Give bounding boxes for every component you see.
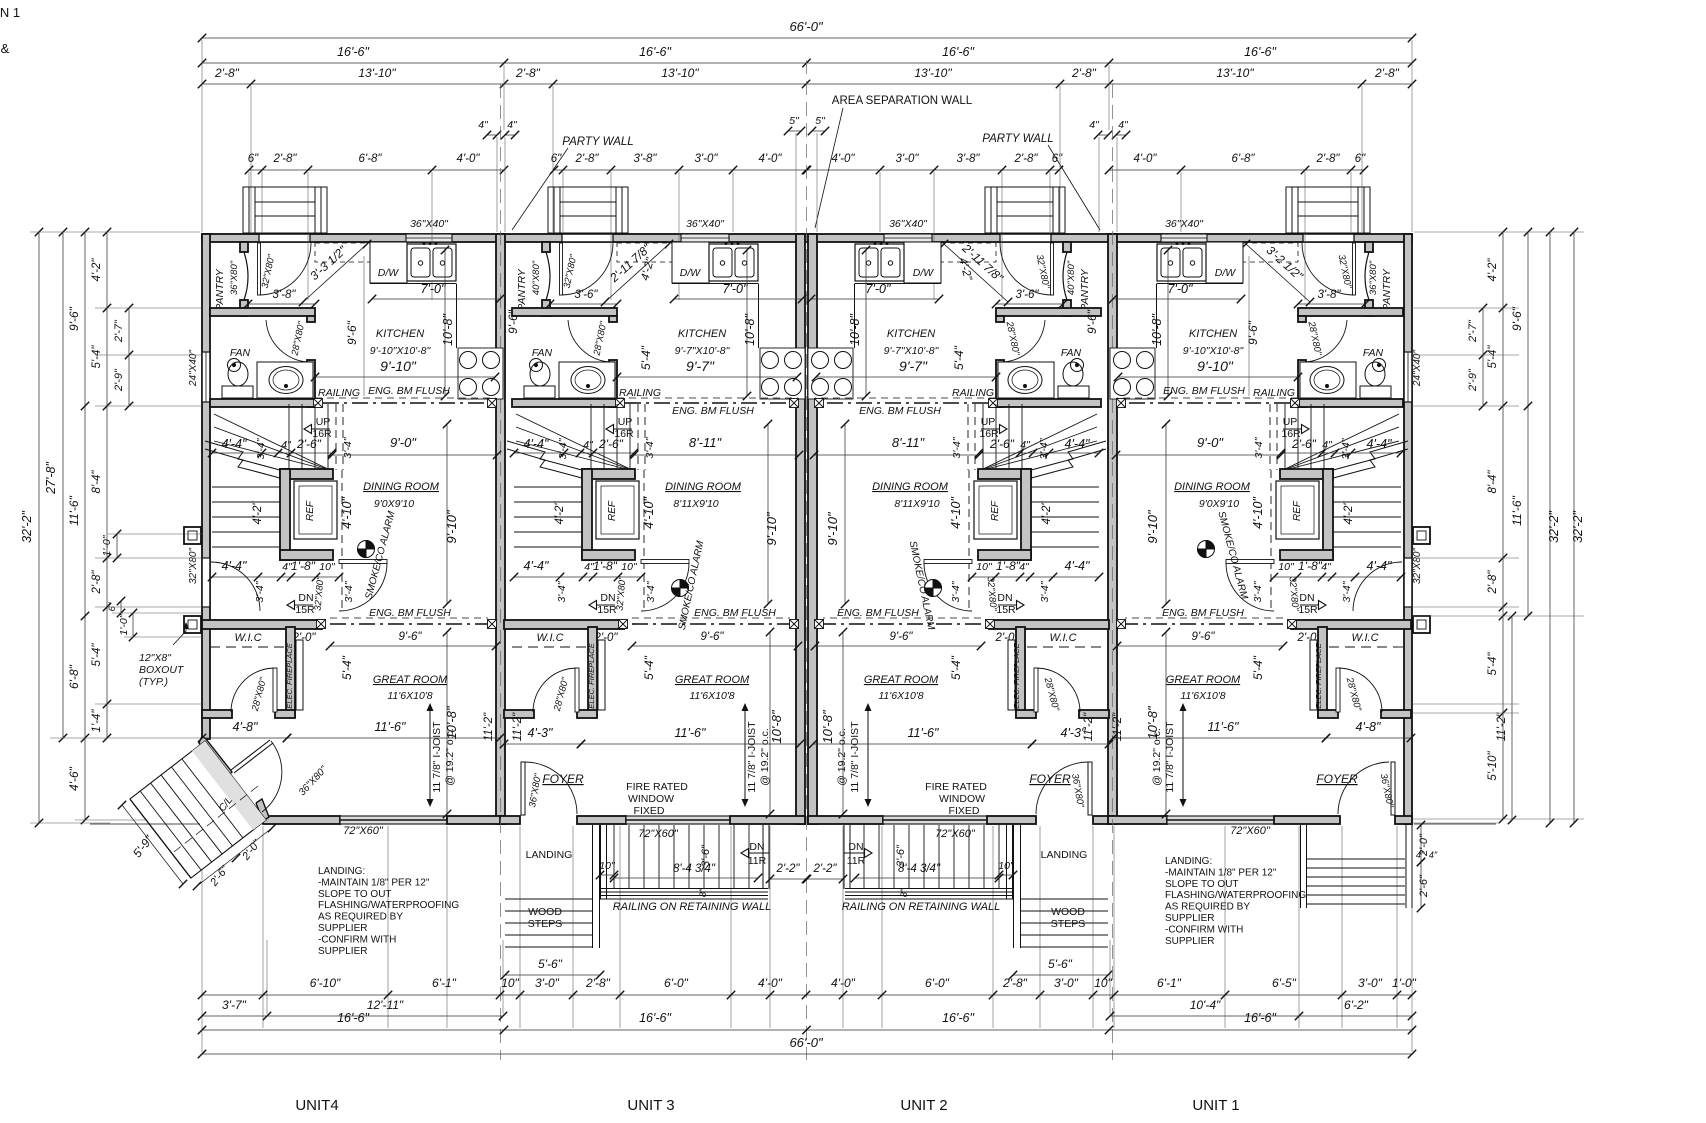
svg-text:13'-10": 13'-10" — [358, 66, 396, 80]
svg-text:3'-4": 3'-4" — [343, 580, 355, 602]
svg-text:16'-6": 16'-6" — [639, 45, 671, 59]
svg-text:3'-6": 3'-6" — [575, 289, 599, 301]
svg-text:FAN: FAN — [1363, 347, 1384, 359]
svg-text:KITCHEN: KITCHEN — [678, 328, 726, 340]
svg-text:ENG. BM FLUSH: ENG. BM FLUSH — [694, 607, 776, 619]
svg-text:11'6X10'8: 11'6X10'8 — [387, 690, 432, 702]
svg-text:ENG. BM FLUSH: ENG. BM FLUSH — [1162, 607, 1244, 619]
svg-text:RAILING: RAILING — [318, 387, 360, 399]
svg-text:5'-4": 5'-4" — [1487, 652, 1499, 676]
svg-text:4'-2": 4'-2" — [1487, 258, 1499, 282]
svg-text:N 1: N 1 — [0, 5, 20, 20]
svg-text:5'-10": 5'-10" — [1487, 750, 1499, 780]
svg-text:ELEC. FIREPLACE: ELEC. FIREPLACE — [587, 642, 596, 708]
svg-text:KITCHEN: KITCHEN — [376, 328, 424, 340]
svg-text:4": 4" — [478, 119, 489, 131]
svg-text:16'-6": 16'-6" — [1244, 45, 1276, 59]
svg-text:1'-8": 1'-8" — [996, 559, 1021, 573]
svg-text:10'-4": 10'-4" — [1190, 998, 1221, 1012]
svg-text:DN: DN — [749, 841, 764, 853]
svg-text:6'-0": 6'-0" — [925, 976, 950, 990]
svg-text:4": 4" — [1019, 561, 1030, 573]
svg-text:6'-0": 6'-0" — [664, 976, 689, 990]
svg-text:11 7/8" I-JOIST: 11 7/8" I-JOIST — [746, 721, 758, 793]
svg-text:6'-2": 6'-2" — [1344, 998, 1369, 1012]
svg-text:3'-0": 3'-0" — [1054, 976, 1079, 990]
svg-text:4'-0": 4'-0" — [758, 976, 783, 990]
svg-text:2'-8": 2'-8" — [91, 570, 103, 595]
svg-text:3'-8": 3'-8" — [1318, 289, 1342, 301]
svg-text:66'-0": 66'-0" — [789, 19, 824, 34]
svg-text:2'-2": 2'-2" — [776, 863, 801, 875]
svg-text:4'-10": 4'-10" — [340, 497, 354, 529]
svg-text:2'-8": 2'-8" — [1014, 153, 1039, 165]
svg-text:9'-6": 9'-6" — [701, 631, 725, 643]
svg-text:16'-6": 16'-6" — [942, 45, 974, 59]
svg-text:5'-4": 5'-4" — [340, 655, 354, 680]
svg-text:ELEC. FIREPLACE: ELEC. FIREPLACE — [1012, 642, 1021, 708]
svg-text:3'-8": 3'-8" — [957, 153, 981, 165]
svg-text:3'-4": 3'-4" — [557, 437, 569, 459]
svg-text:4'-4": 4'-4" — [1367, 437, 1392, 451]
svg-text:REF: REF — [607, 500, 618, 521]
svg-text:KITCHEN: KITCHEN — [887, 328, 935, 340]
svg-text:10": 10" — [319, 561, 336, 573]
svg-text:UNIT 2: UNIT 2 — [900, 1097, 947, 1114]
svg-text:5'-4": 5'-4" — [1487, 345, 1499, 369]
svg-text:4'-10": 4'-10" — [642, 497, 656, 529]
svg-text:5'-4": 5'-4" — [952, 345, 966, 370]
svg-text:6'-1": 6'-1" — [1157, 976, 1182, 990]
svg-text:3'-4": 3'-4" — [255, 437, 267, 459]
svg-text:1'-4": 1'-4" — [91, 709, 103, 733]
svg-text:11'-6": 11'-6" — [675, 726, 706, 740]
svg-text:FOYER: FOYER — [1316, 772, 1358, 786]
svg-text:10'-8": 10'-8" — [848, 314, 862, 346]
svg-text:9'-6": 9'-6" — [67, 306, 81, 331]
svg-text:5'-4": 5'-4" — [642, 655, 656, 680]
svg-text:40"X80": 40"X80" — [531, 260, 542, 295]
svg-text:DN: DN — [600, 592, 615, 604]
svg-text:6'-1": 6'-1" — [432, 976, 457, 990]
svg-text:PARTY WALL: PARTY WALL — [982, 133, 1053, 145]
svg-text:2'-6": 2'-6" — [989, 437, 1015, 451]
svg-text:FOYER: FOYER — [542, 772, 584, 786]
svg-text:4'-4": 4'-4" — [1367, 559, 1392, 573]
svg-text:2'-8": 2'-8" — [515, 66, 541, 80]
svg-text:4": 4" — [1322, 439, 1333, 451]
svg-text:4'-4": 4'-4" — [222, 559, 247, 573]
svg-text:GREAT ROOM: GREAT ROOM — [864, 674, 939, 686]
svg-text:27'-8": 27'-8" — [44, 462, 58, 495]
svg-text:3'-6": 3'-6" — [1016, 289, 1040, 301]
svg-text:WINDOW: WINDOW — [939, 793, 985, 805]
svg-text:4'-2": 4'-2" — [1343, 501, 1355, 525]
svg-text:36"X40": 36"X40" — [686, 218, 725, 230]
svg-text:AREA SEPARATION WALL: AREA SEPARATION WALL — [832, 95, 973, 107]
svg-text:BOXOUT: BOXOUT — [139, 664, 185, 676]
svg-text:6'-8": 6'-8" — [1232, 153, 1256, 165]
svg-text:36"X40": 36"X40" — [1165, 218, 1204, 230]
svg-text:FIXED: FIXED — [949, 805, 980, 817]
svg-text:-MAINTAIN 1/8" PER 12": -MAINTAIN 1/8" PER 12" — [318, 877, 430, 888]
svg-text:3'-4": 3'-4" — [1340, 437, 1352, 459]
svg-text:AS REQUIRED BY: AS REQUIRED BY — [1165, 902, 1250, 913]
svg-text:2'-7": 2'-7" — [1467, 319, 1479, 343]
svg-text:7'-0": 7'-0" — [421, 282, 446, 296]
svg-text:2'-9": 2'-9" — [1467, 368, 1479, 392]
svg-text:11'6X10'8: 11'6X10'8 — [878, 690, 923, 702]
svg-text:4'-2": 4'-2" — [252, 501, 264, 525]
svg-text:RAILING ON RETAINING WALL: RAILING ON RETAINING WALL — [842, 901, 1001, 913]
svg-text:3'-4": 3'-4" — [645, 580, 657, 602]
svg-text:6": 6" — [107, 602, 118, 611]
svg-text:FLASHING/WATERPROOFING: FLASHING/WATERPROOFING — [1165, 890, 1306, 901]
svg-text:FIRE RATED: FIRE RATED — [626, 781, 688, 793]
svg-text:DINING ROOM: DINING ROOM — [363, 481, 440, 493]
svg-text:6'-5": 6'-5" — [1272, 976, 1297, 990]
svg-text:LANDING: LANDING — [526, 849, 573, 861]
svg-text:W.I.C: W.I.C — [1351, 632, 1378, 644]
svg-text:UNIT 1: UNIT 1 — [1192, 1097, 1239, 1114]
svg-text:@ 19.2" o.c.: @ 19.2" o.c. — [836, 728, 848, 786]
svg-text:9'-10": 9'-10" — [380, 358, 417, 374]
svg-text:UP: UP — [1283, 416, 1298, 428]
svg-text:FAN: FAN — [532, 347, 553, 359]
svg-text:13'-10": 13'-10" — [1216, 66, 1254, 80]
svg-text:4": 4" — [1089, 119, 1100, 131]
svg-text:9'-10": 9'-10" — [444, 509, 459, 544]
svg-text:ELEC. FIREPLACE: ELEC. FIREPLACE — [1314, 642, 1323, 708]
svg-text:4'-4": 4'-4" — [222, 437, 247, 451]
svg-text:12"X8": 12"X8" — [139, 652, 172, 664]
svg-text:4'-4": 4'-4" — [1065, 437, 1090, 451]
svg-text:1'-8": 1'-8" — [1298, 559, 1323, 573]
svg-text:12'-11": 12'-11" — [367, 998, 404, 1012]
svg-text:5'-4": 5'-4" — [949, 655, 963, 680]
svg-text:11'6X10'8: 11'6X10'8 — [1180, 690, 1225, 702]
svg-text:4": 4" — [1321, 561, 1332, 573]
svg-text:3'-4": 3'-4" — [556, 580, 568, 602]
svg-text:11'-2": 11'-2" — [483, 712, 495, 741]
svg-text:2'-8": 2'-8" — [1316, 153, 1341, 165]
svg-text:11'-2": 11'-2" — [1496, 712, 1508, 741]
svg-text:66'-0": 66'-0" — [789, 1035, 824, 1050]
svg-text:@ 19.2" o.c.: @ 19.2" o.c. — [1151, 728, 1163, 786]
svg-text:STEPS: STEPS — [528, 918, 562, 930]
svg-text:5'-6": 5'-6" — [1048, 957, 1073, 971]
svg-text:3'-6": 3'-6" — [895, 844, 907, 867]
svg-text:SLOPE TO OUT: SLOPE TO OUT — [318, 889, 392, 900]
svg-text:STEPS: STEPS — [1051, 918, 1085, 930]
svg-text:3'-7": 3'-7" — [222, 998, 247, 1012]
svg-text:D/W: D/W — [680, 267, 702, 279]
svg-text:9'-6": 9'-6" — [506, 309, 520, 334]
svg-text:3'-8": 3'-8" — [634, 153, 658, 165]
svg-text:10'-8": 10'-8" — [769, 709, 784, 744]
svg-text:-MAINTAIN 1/8" PER 12": -MAINTAIN 1/8" PER 12" — [1165, 867, 1277, 878]
svg-text:WOOD: WOOD — [1051, 906, 1085, 918]
svg-text:FLASHING/WATERPROOFING: FLASHING/WATERPROOFING — [318, 900, 459, 911]
svg-text:9'-7": 9'-7" — [686, 358, 715, 374]
svg-text:7'-0": 7'-0" — [723, 282, 748, 296]
svg-text:2'-8": 2'-8" — [575, 153, 600, 165]
svg-text:8'-4": 8'-4" — [91, 470, 103, 494]
svg-text:3'-4": 3'-4" — [1038, 437, 1050, 459]
svg-text:10": 10" — [1278, 561, 1295, 573]
svg-text:36"X80": 36"X80" — [1368, 260, 1379, 295]
svg-text:LANDING:: LANDING: — [1165, 856, 1212, 867]
svg-text:SUPPLIER: SUPPLIER — [1165, 936, 1214, 947]
svg-text:2'-8": 2'-8" — [1374, 66, 1400, 80]
svg-text:9'-6": 9'-6" — [1192, 631, 1216, 643]
svg-text:10": 10" — [1094, 976, 1112, 990]
svg-text:UNIT 3: UNIT 3 — [627, 1097, 674, 1114]
svg-text:8'-4": 8'-4" — [1487, 470, 1499, 494]
svg-text:11 7/8" I-JOIST: 11 7/8" I-JOIST — [849, 721, 861, 793]
svg-text:3'-0": 3'-0" — [535, 976, 560, 990]
svg-text:9'-6": 9'-6" — [399, 631, 423, 643]
svg-text:5": 5" — [789, 115, 800, 127]
svg-text:4'-3": 4'-3" — [528, 726, 553, 740]
svg-text:-CONFIRM WITH: -CONFIRM WITH — [1165, 924, 1243, 935]
svg-text:DINING ROOM: DINING ROOM — [872, 481, 949, 493]
svg-text:4'-0": 4'-0" — [832, 153, 856, 165]
svg-text:1'-0": 1'-0" — [118, 613, 130, 635]
svg-text:8'11X9'10: 8'11X9'10 — [673, 498, 718, 510]
svg-text:10'-8": 10'-8" — [820, 709, 835, 744]
svg-text:DINING ROOM: DINING ROOM — [1174, 481, 1251, 493]
svg-text:4'-8": 4'-8" — [233, 720, 258, 734]
svg-text:4'-4": 4'-4" — [524, 559, 549, 573]
svg-text:WOOD: WOOD — [528, 906, 562, 918]
svg-text:4": 4" — [1429, 850, 1438, 860]
svg-text:5'-4": 5'-4" — [639, 345, 653, 370]
svg-text:RAILING ON RETAINING WALL: RAILING ON RETAINING WALL — [613, 901, 772, 913]
svg-text:D/W: D/W — [378, 267, 400, 279]
svg-text:8'-11": 8'-11" — [892, 435, 926, 450]
svg-text:10": 10" — [976, 561, 993, 573]
svg-text:DN: DN — [848, 841, 863, 853]
svg-text:7'-0": 7'-0" — [1168, 282, 1193, 296]
svg-text:FIRE RATED: FIRE RATED — [925, 781, 987, 793]
svg-text:2'-6": 2'-6" — [1291, 437, 1317, 451]
svg-text:9'-7"X10'-8": 9'-7"X10'-8" — [675, 345, 731, 357]
svg-text:(TYP.): (TYP.) — [139, 676, 168, 688]
svg-text:WINDOW: WINDOW — [628, 793, 674, 805]
svg-text:13'-10": 13'-10" — [661, 66, 699, 80]
svg-text:UP: UP — [316, 416, 331, 428]
svg-text:2'-8": 2'-8" — [273, 153, 298, 165]
svg-text:4'-2": 4'-2" — [554, 501, 566, 525]
svg-text:32'-2": 32'-2" — [1547, 511, 1561, 543]
svg-text:4'-0": 4'-0" — [759, 153, 783, 165]
svg-text:3'-0": 3'-0" — [695, 153, 719, 165]
svg-text:32"X80": 32"X80" — [188, 548, 199, 584]
svg-text:6": 6" — [1355, 153, 1366, 165]
svg-text:FAN: FAN — [230, 347, 251, 359]
svg-text:16'-6": 16'-6" — [337, 1011, 369, 1025]
svg-text:11'-2": 11'-2" — [1083, 712, 1095, 741]
svg-text:4": 4" — [507, 119, 518, 131]
svg-text:3'-4": 3'-4" — [1341, 580, 1353, 602]
svg-text:9'-0": 9'-0" — [390, 435, 417, 450]
svg-text:3'-0": 3'-0" — [896, 153, 920, 165]
svg-text:9'0X9'10: 9'0X9'10 — [1199, 498, 1239, 510]
svg-text:DINING ROOM: DINING ROOM — [665, 481, 742, 493]
svg-text:5'-4": 5'-4" — [91, 345, 103, 369]
svg-text:3'-4": 3'-4" — [1039, 580, 1051, 602]
svg-text:11'-6": 11'-6" — [1510, 495, 1524, 525]
svg-text:RAILING: RAILING — [1253, 387, 1295, 399]
svg-text:D/W: D/W — [1215, 267, 1237, 279]
svg-text:2'-9": 2'-9" — [113, 368, 125, 392]
svg-text:1'-8": 1'-8" — [593, 559, 618, 573]
svg-text:2'-7": 2'-7" — [113, 319, 125, 343]
svg-text:4'-2": 4'-2" — [1041, 501, 1053, 525]
svg-text:2'-2": 2'-2" — [813, 863, 838, 875]
svg-text:10": 10" — [998, 860, 1015, 872]
svg-text:11 7/8" I-JOIST: 11 7/8" I-JOIST — [1164, 721, 1176, 793]
svg-text:SLOPE TO OUT: SLOPE TO OUT — [1165, 879, 1239, 890]
svg-text:40"X80": 40"X80" — [1066, 260, 1077, 295]
svg-text:&: & — [1, 41, 10, 56]
svg-text:72"X60": 72"X60" — [1230, 825, 1271, 837]
svg-text:9'-6": 9'-6" — [1510, 306, 1524, 331]
svg-text:KITCHEN: KITCHEN — [1189, 328, 1237, 340]
svg-text:36"X80": 36"X80" — [229, 260, 240, 295]
svg-text:DN: DN — [1299, 592, 1314, 604]
svg-text:11'-6": 11'-6" — [375, 720, 406, 734]
svg-text:32'-2": 32'-2" — [1571, 511, 1585, 543]
svg-text:ENG. BM FLUSH: ENG. BM FLUSH — [859, 405, 941, 417]
svg-text:2'-8": 2'-8" — [1071, 66, 1097, 80]
svg-text:6": 6" — [248, 153, 259, 165]
svg-text:UP: UP — [618, 416, 633, 428]
svg-text:9'-10": 9'-10" — [1197, 358, 1234, 374]
svg-text:LANDING: LANDING — [1041, 849, 1088, 861]
svg-text:6'-8": 6'-8" — [359, 153, 383, 165]
svg-text:2'-8": 2'-8" — [585, 976, 611, 990]
svg-text:PARTY WALL: PARTY WALL — [562, 136, 633, 148]
svg-text:REF: REF — [1292, 500, 1303, 521]
svg-text:2'-8": 2'-8" — [214, 66, 240, 80]
svg-text:72"X60": 72"X60" — [935, 828, 976, 840]
svg-text:2'-8": 2'-8" — [1002, 976, 1028, 990]
svg-text:ENG. BM FLUSH: ENG. BM FLUSH — [837, 607, 919, 619]
svg-text:REF: REF — [990, 500, 1001, 521]
svg-text:11R: 11R — [847, 855, 866, 867]
svg-text:5'-6": 5'-6" — [538, 957, 563, 971]
svg-text:11 7/8" I-JOIST: 11 7/8" I-JOIST — [431, 721, 443, 793]
svg-text:5": 5" — [815, 115, 826, 127]
svg-text:4": 4" — [583, 439, 594, 451]
svg-text:2'-6": 2'-6" — [296, 437, 322, 451]
svg-text:SUPPLIER: SUPPLIER — [318, 923, 367, 934]
svg-text:2'-8": 2'-8" — [1487, 570, 1499, 595]
svg-text:1'-0": 1'-0" — [101, 534, 113, 556]
svg-text:32"X80": 32"X80" — [1412, 548, 1423, 584]
svg-text:11'-6": 11'-6" — [908, 726, 939, 740]
svg-text:9'-10"X10'-8": 9'-10"X10'-8" — [370, 345, 432, 357]
svg-text:2'-6": 2'-6" — [598, 437, 624, 451]
svg-text:SUPPLIER: SUPPLIER — [1165, 913, 1214, 924]
svg-text:11'6X10'8: 11'6X10'8 — [689, 690, 734, 702]
svg-text:1'-8": 1'-8" — [291, 559, 316, 573]
svg-text:8'11X9'10: 8'11X9'10 — [894, 498, 939, 510]
svg-text:9'-10": 9'-10" — [1145, 509, 1160, 544]
svg-text:3'-4": 3'-4" — [950, 580, 962, 602]
svg-text:9'-0": 9'-0" — [1197, 435, 1224, 450]
svg-text:11'-2": 11'-2" — [1112, 712, 1124, 741]
svg-text:4": 4" — [281, 439, 292, 451]
svg-text:9'-6": 9'-6" — [1246, 320, 1260, 345]
svg-text:9'-7"X10'-8": 9'-7"X10'-8" — [884, 345, 940, 357]
svg-text:GREAT ROOM: GREAT ROOM — [1166, 674, 1241, 686]
svg-text:5'-4": 5'-4" — [91, 643, 103, 667]
svg-text:3'-4": 3'-4" — [1252, 580, 1264, 602]
svg-text:W.I.C: W.I.C — [234, 632, 261, 644]
svg-text:4'-6": 4'-6" — [67, 766, 81, 791]
svg-text:4'-2": 4'-2" — [91, 258, 103, 282]
svg-text:W.I.C: W.I.C — [536, 632, 563, 644]
svg-text:FOYER: FOYER — [1029, 772, 1071, 786]
svg-text:16'-6": 16'-6" — [1244, 1011, 1276, 1025]
svg-text:9'0X9'10: 9'0X9'10 — [374, 498, 414, 510]
svg-text:4": 4" — [1416, 850, 1425, 860]
svg-text:-CONFIRM WITH: -CONFIRM WITH — [318, 934, 396, 945]
svg-text:ENG. BM FLUSH: ENG. BM FLUSH — [369, 607, 451, 619]
svg-text:D/W: D/W — [913, 267, 935, 279]
svg-text:@ 19.2" o.c.: @ 19.2" o.c. — [759, 728, 771, 786]
svg-text:8'-11": 8'-11" — [689, 435, 723, 450]
svg-text:GREAT ROOM: GREAT ROOM — [373, 674, 448, 686]
svg-text:DN: DN — [298, 592, 313, 604]
svg-text:11'-2": 11'-2" — [512, 712, 524, 741]
svg-text:11'-6": 11'-6" — [67, 495, 81, 525]
svg-text:4'-8": 4'-8" — [1356, 720, 1381, 734]
svg-text:36"X40": 36"X40" — [889, 218, 928, 230]
svg-text:32'-2": 32'-2" — [20, 511, 34, 543]
svg-text:REF: REF — [305, 500, 316, 521]
svg-text:10": 10" — [501, 976, 519, 990]
svg-text:11R: 11R — [748, 855, 767, 867]
svg-text:9'-6": 9'-6" — [1085, 309, 1099, 334]
svg-text:6'-8": 6'-8" — [67, 664, 81, 689]
svg-text:8": 8" — [698, 888, 708, 897]
svg-text:4'-0": 4'-0" — [457, 153, 481, 165]
svg-text:9'-10": 9'-10" — [825, 511, 840, 546]
svg-text:SUPPLIER: SUPPLIER — [318, 946, 367, 957]
svg-text:6": 6" — [1052, 153, 1063, 165]
svg-text:DN: DN — [997, 592, 1012, 604]
svg-text:5'-4": 5'-4" — [1251, 655, 1265, 680]
svg-text:9'-10"X10'-8": 9'-10"X10'-8" — [1183, 345, 1245, 357]
svg-text:6'-10": 6'-10" — [310, 976, 341, 990]
svg-text:GREAT ROOM: GREAT ROOM — [675, 674, 750, 686]
svg-text:16'-6": 16'-6" — [942, 1011, 974, 1025]
svg-text:10": 10" — [621, 561, 638, 573]
svg-text:PANTRY: PANTRY — [1079, 268, 1091, 310]
svg-text:UP: UP — [981, 416, 996, 428]
svg-text:13'-10": 13'-10" — [914, 66, 952, 80]
svg-text:@ 19.2" o.c.: @ 19.2" o.c. — [444, 728, 456, 786]
svg-text:4'-4": 4'-4" — [524, 437, 549, 451]
svg-text:PANTRY: PANTRY — [1381, 268, 1393, 310]
svg-text:LANDING:: LANDING: — [318, 866, 365, 877]
svg-text:10'-8": 10'-8" — [441, 314, 455, 346]
svg-text:3'-8": 3'-8" — [273, 289, 297, 301]
